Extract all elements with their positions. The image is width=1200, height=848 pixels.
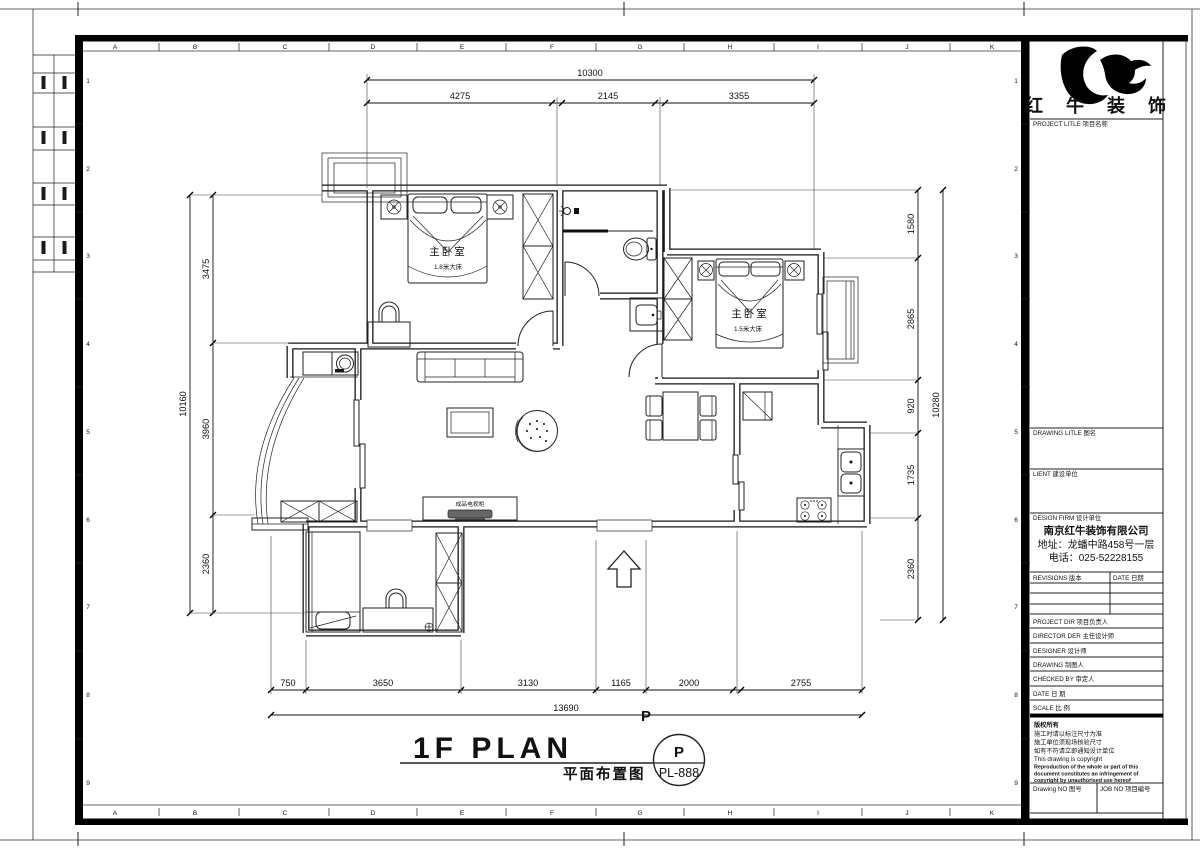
plan-walls bbox=[288, 188, 867, 633]
stamp-letter: P bbox=[674, 744, 684, 761]
swing-doors bbox=[518, 262, 662, 377]
living-room-furniture bbox=[281, 352, 558, 522]
dim-left-overall: 10160 bbox=[178, 391, 188, 417]
bedroom2-furniture bbox=[664, 258, 804, 348]
dim-right-seg: 920 bbox=[906, 398, 916, 413]
copyright-line: document constitutes an infringement of bbox=[1034, 772, 1139, 778]
grid-number: 6 bbox=[1014, 517, 1018, 524]
logo-text: 红 牛 装 饰 bbox=[1025, 95, 1175, 116]
dim-top-seg: 2145 bbox=[598, 91, 618, 101]
drawing-sheet: A B C D E F G H I J K A B C D E F G H I … bbox=[0, 0, 1200, 848]
plan-title: 1F PLAN 平面布置图 P PL-888 bbox=[400, 732, 705, 786]
grid-letter: E bbox=[460, 810, 465, 817]
grid-letter: K bbox=[990, 44, 995, 51]
sheet-margin-lines bbox=[0, 2, 1200, 846]
grid-number: 6 bbox=[86, 517, 90, 524]
project-title-label: PROJECT LITLE 项目名称 bbox=[1033, 119, 1108, 128]
grid-number: 9 bbox=[86, 780, 90, 787]
bedroom2-bed-size: 1.5米大床 bbox=[734, 324, 763, 333]
grid-letter: A bbox=[113, 44, 118, 51]
tv-cabinet-label: 成品电视柜 bbox=[456, 500, 485, 508]
grid-number: 9 bbox=[1014, 780, 1018, 787]
grid-letter: H bbox=[728, 44, 733, 51]
frame-bars bbox=[75, 35, 1188, 825]
design-firm-label: DESIGN FIRM 设计单位 bbox=[1033, 513, 1102, 522]
drawing-no-label: Drawing NO 图号 bbox=[1033, 785, 1082, 793]
staff-row: PROJECT DIR 项目负责人 bbox=[1033, 617, 1109, 626]
grid-letter: K bbox=[990, 810, 995, 817]
study-furniture bbox=[306, 532, 462, 632]
cad-sheet-svg: A B C D E F G H I J K A B C D E F G H I … bbox=[0, 0, 1200, 848]
dimension-lines bbox=[187, 74, 946, 718]
copyright-line: copyright by unauthorised use hereof bbox=[1034, 778, 1131, 784]
dim-bottom-overall: 13690 bbox=[553, 703, 579, 713]
bedroom1-bed-size: 1.8米大床 bbox=[434, 262, 463, 271]
grid-letter: G bbox=[637, 44, 642, 51]
firm-address: 地址：龙蟠中路458号一层 bbox=[1038, 538, 1155, 551]
grid-letter: I bbox=[817, 810, 819, 817]
bedroom1-label: 主卧室 bbox=[429, 245, 467, 258]
grid-letter: F bbox=[550, 44, 554, 51]
staff-row: SCALE 比 例 bbox=[1033, 703, 1070, 712]
job-no-label: JOB NO 项目编号 bbox=[1100, 784, 1150, 793]
grid-letter: J bbox=[905, 810, 908, 817]
staff-row: DRAWING 制图人 bbox=[1033, 660, 1085, 669]
stamp-code: PL-888 bbox=[659, 766, 699, 780]
grid-number: 5 bbox=[1014, 429, 1018, 436]
grid-number: 1 bbox=[86, 78, 90, 85]
grid-letter: C bbox=[283, 44, 288, 51]
grid-number: 8 bbox=[86, 692, 90, 699]
copyright-line: 版权所有 bbox=[1033, 721, 1059, 729]
copyright-line: This drawing is copyright bbox=[1034, 756, 1102, 763]
grid-letter: D bbox=[371, 810, 376, 817]
grid-letter: F bbox=[550, 810, 554, 817]
dim-left-seg: 3475 bbox=[201, 259, 211, 279]
bedroom2-label: 主卧室 bbox=[731, 307, 769, 320]
grid-letter: B bbox=[193, 810, 197, 817]
grid-letter: G bbox=[637, 810, 642, 817]
company-logo: 红 牛 装 饰 bbox=[1025, 46, 1175, 116]
staff-row: DIRECTOR DER 主任设计师 bbox=[1033, 631, 1114, 640]
grid-number: 7 bbox=[1014, 604, 1018, 611]
room-labels: 主卧室 1.8米大床 主卧室 1.5米大床 成品电视柜 bbox=[429, 245, 769, 508]
left-balcony bbox=[252, 377, 358, 530]
plan-title-en: 1F PLAN bbox=[413, 732, 573, 765]
dim-left-seg: 2360 bbox=[201, 554, 211, 574]
dim-bottom-seg: 3650 bbox=[373, 678, 393, 688]
staff-row: CHECKED BY 审定人 bbox=[1033, 674, 1095, 683]
grid-references: A B C D E F G H I J K A B C D E F G H I … bbox=[75, 43, 1030, 817]
firm-name: 南京红牛装饰有限公司 bbox=[1044, 524, 1149, 537]
dim-left-seg: 3960 bbox=[201, 419, 211, 439]
grid-letter: H bbox=[728, 810, 733, 817]
kitchen bbox=[743, 392, 864, 524]
left-margin-table bbox=[33, 55, 75, 272]
dim-right-seg: 2865 bbox=[906, 309, 916, 329]
grid-number: 4 bbox=[1014, 341, 1018, 348]
grid-number: 3 bbox=[86, 253, 90, 260]
bathroom bbox=[559, 206, 656, 260]
dim-bottom-seg: 2755 bbox=[791, 678, 811, 688]
grid-letter: D bbox=[371, 44, 376, 51]
dim-bottom-marker: P bbox=[641, 708, 651, 725]
grid-number: 2 bbox=[86, 166, 90, 173]
dim-bottom-seg: 750 bbox=[280, 678, 295, 688]
dim-right-seg: 2360 bbox=[906, 559, 916, 579]
dim-right-overall: 10280 bbox=[931, 392, 941, 418]
laundry-niche bbox=[303, 352, 358, 375]
staff-row: DATE 日 期 bbox=[1033, 690, 1065, 698]
grid-letter: I bbox=[817, 44, 819, 51]
copyright-line: Reproduction of the whole or part of thi… bbox=[1034, 765, 1138, 771]
dim-right-seg: 1580 bbox=[906, 214, 916, 234]
dim-bottom-seg: 1165 bbox=[611, 678, 631, 688]
grid-number: 8 bbox=[1014, 692, 1018, 699]
copyright-line: 如有不符请立即通知设计单位 bbox=[1034, 747, 1114, 755]
plan-title-cn: 平面布置图 bbox=[563, 765, 646, 783]
copyright-line: 施工时请以标注尺寸为准 bbox=[1034, 730, 1102, 738]
grid-number: 5 bbox=[86, 429, 90, 436]
grid-number: 1 bbox=[1014, 78, 1018, 85]
dimension-text: 10300 4275 2145 3355 750 3650 3130 1165 … bbox=[178, 68, 941, 725]
dim-bottom-seg: 3130 bbox=[518, 678, 538, 688]
grid-number: 2 bbox=[1014, 166, 1018, 173]
grid-letter: A bbox=[113, 810, 118, 817]
entry-arrow bbox=[608, 551, 640, 587]
staff-row: DESIGNER 设计师 bbox=[1033, 646, 1087, 655]
dim-top-seg: 4275 bbox=[450, 91, 470, 101]
firm-phone: 电话：025-52228155 bbox=[1049, 551, 1144, 564]
dim-top-seg: 3355 bbox=[729, 91, 749, 101]
dim-top-overall: 10300 bbox=[577, 68, 603, 78]
grid-number: 4 bbox=[86, 341, 90, 348]
dining-set bbox=[646, 392, 716, 440]
date-col-label: DATE 日期 bbox=[1113, 574, 1144, 582]
dim-bottom-seg: 2000 bbox=[679, 678, 699, 688]
client-label: LIENT 建设单位 bbox=[1033, 469, 1078, 478]
dim-right-seg: 1735 bbox=[906, 465, 916, 485]
revisions-label: REVISIONS 版本 bbox=[1033, 573, 1082, 582]
grid-letter: B bbox=[193, 44, 197, 51]
drawing-title-label: DRAWING LITLE 图名 bbox=[1033, 428, 1096, 437]
grid-number: 7 bbox=[86, 604, 90, 611]
grid-letter: E bbox=[460, 44, 465, 51]
grid-number: 3 bbox=[1014, 253, 1018, 260]
copyright-line: 施工单位须现场核验尺寸 bbox=[1034, 739, 1102, 747]
title-block-text: PROJECT LITLE 项目名称 DRAWING LITLE 图名 LIEN… bbox=[1033, 119, 1154, 793]
grid-letter: C bbox=[283, 810, 288, 817]
grid-letter: J bbox=[905, 44, 908, 51]
